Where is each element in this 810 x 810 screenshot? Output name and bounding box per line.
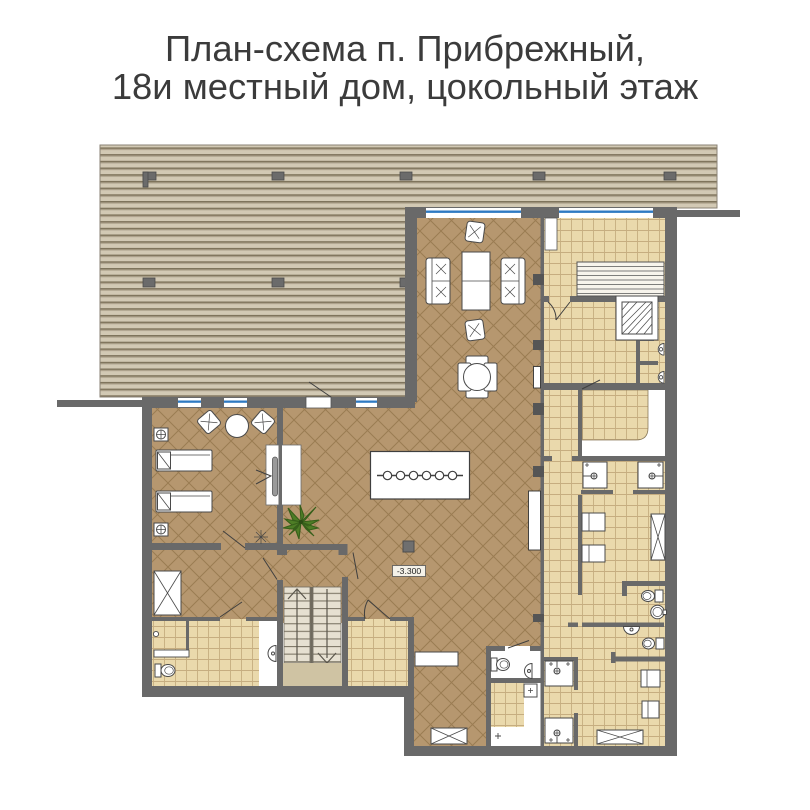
svg-text:18и местный дом, цокольный эта: 18и местный дом, цокольный этаж (112, 66, 699, 107)
svg-text:-3.300: -3.300 (397, 566, 422, 576)
svg-text:План-схема п. Прибрежный,: План-схема п. Прибрежный, (165, 28, 645, 69)
